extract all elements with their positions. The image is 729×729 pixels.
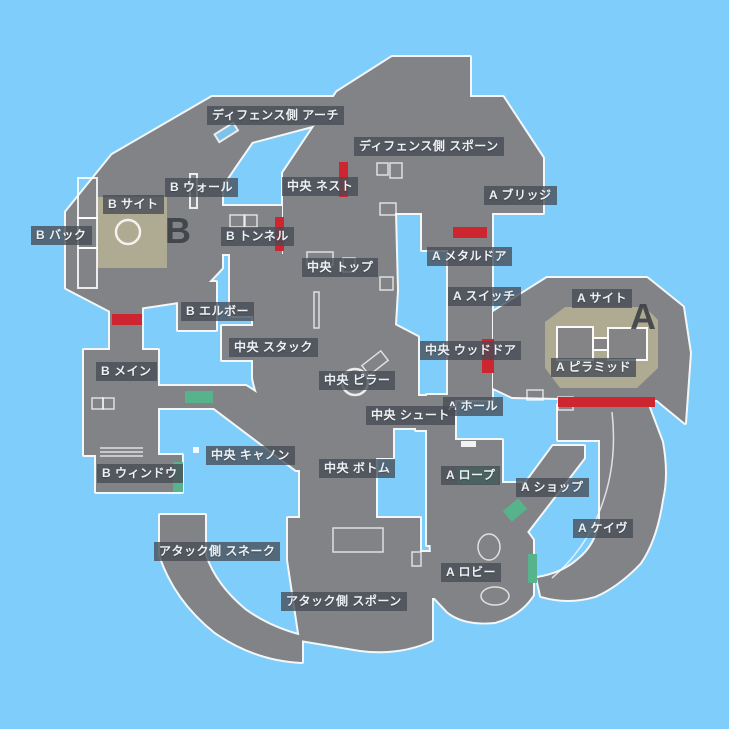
map-canvas[interactable]: ディフェンス側 アーチディフェンス側 スポーンB ウォール中央 ネストA ブリッ… [0, 0, 729, 729]
pyramid-right [608, 328, 647, 360]
map-geometry [0, 0, 729, 729]
b-site-zone [97, 197, 167, 268]
pyramid-left [557, 327, 593, 360]
